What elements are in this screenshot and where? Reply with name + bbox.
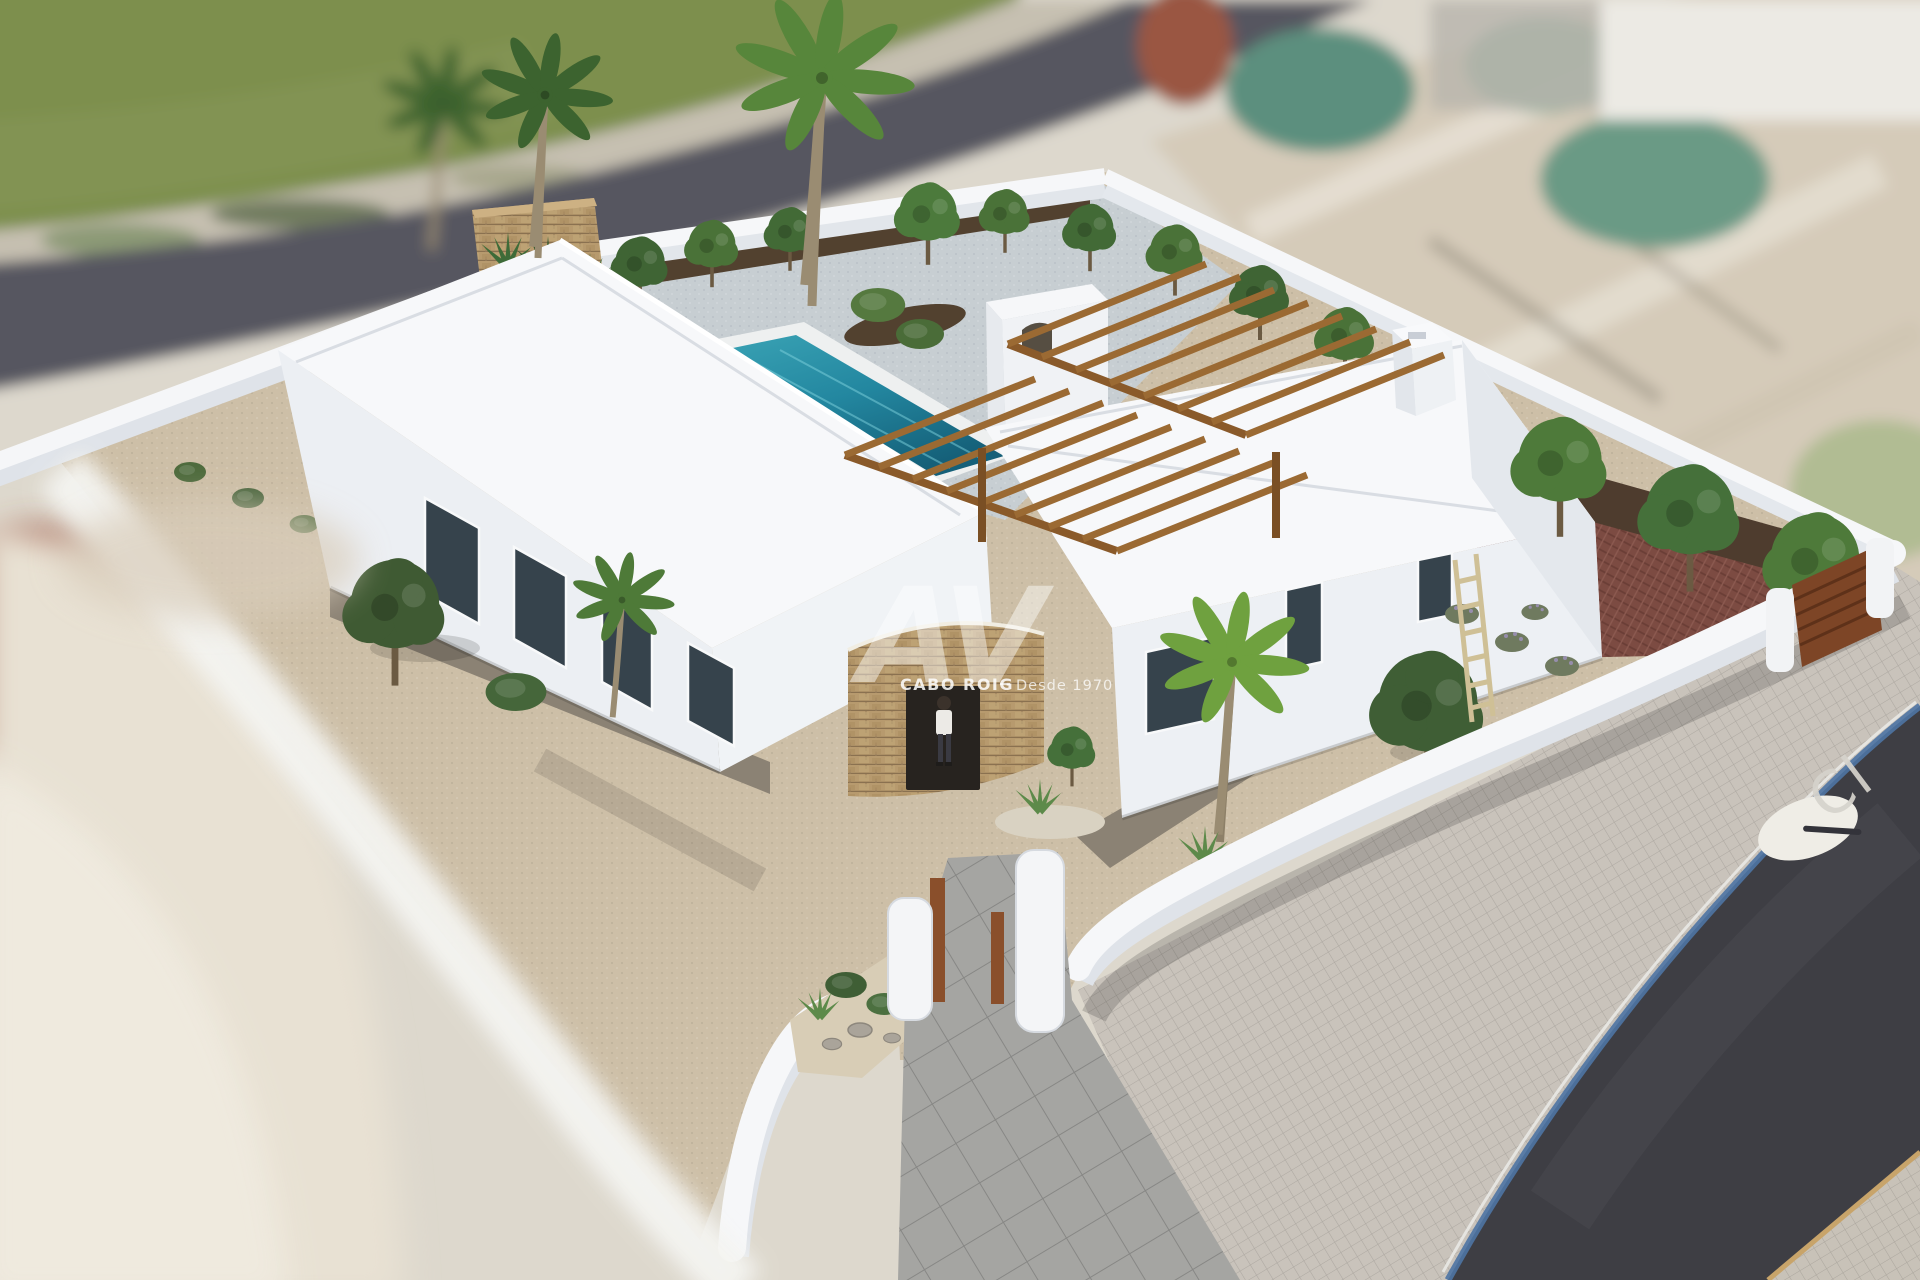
shrub [174, 462, 206, 482]
gate-pillar [1866, 538, 1894, 618]
gate-pillar [1766, 588, 1794, 672]
lavender [1495, 632, 1529, 652]
fan-palm [851, 288, 905, 322]
render-canvas: Cl AV CABO ROIG Desde 1970 [0, 0, 1920, 1280]
blurred-trees [1540, 112, 1770, 248]
corten-gate-post [991, 912, 1004, 1004]
white-pebble-bed [995, 805, 1105, 839]
blurred-trees [1225, 28, 1415, 152]
lavender [1521, 604, 1548, 620]
watermark-dash [1000, 683, 1010, 685]
blurred-beige-patch [60, 500, 360, 620]
pergola-post [1272, 452, 1280, 538]
lavender [1545, 656, 1579, 676]
fan-palm [896, 319, 944, 349]
gate-pillar-left [888, 898, 932, 1020]
pergola-post [978, 448, 986, 542]
bush [486, 673, 547, 711]
blurred-building [1430, 0, 1610, 110]
blurred-building [1600, 0, 1920, 120]
watermark-tagline: Desde 1970 [1016, 678, 1113, 694]
watermark-brand: CABO ROIG [900, 675, 1014, 694]
gate-pillar-right [1016, 850, 1064, 1032]
villa-render: Cl AV CABO ROIG Desde 1970 [0, 0, 1920, 1280]
